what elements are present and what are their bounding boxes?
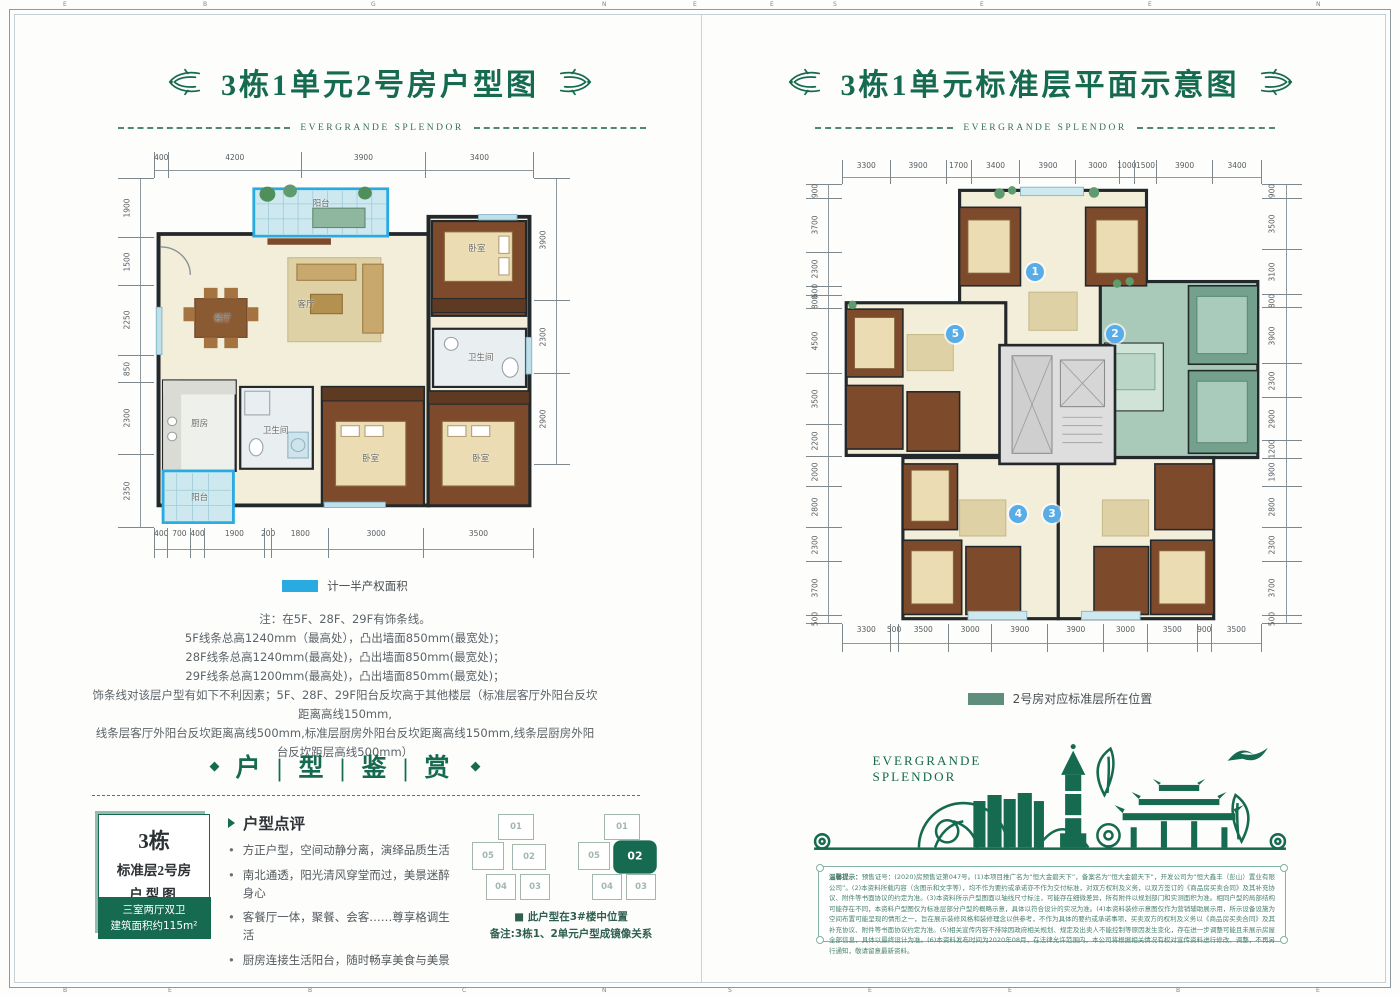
mini-unit-cell: 04 (592, 874, 622, 900)
disclaimer-text: 预售证号：(2020)房预售证第047号。(1)本项目推广名为“恒大金碧天下”，… (829, 873, 1275, 955)
dim-segment: 3700 (806, 561, 842, 615)
room-label: 餐厅 (214, 312, 231, 324)
dim-segment: 800 (1262, 294, 1302, 306)
section-title: 户 | 型 | 鉴 | 赏 (235, 748, 454, 784)
dim-value: 2200 (811, 431, 820, 450)
dim-segment: 3500 (1211, 624, 1262, 652)
dim-segment: 3900 (534, 178, 570, 300)
mini-unit-cell: 01 (498, 814, 534, 840)
dim-segment: 3000 (1075, 160, 1118, 184)
dim-segment: 3000 (1103, 624, 1146, 652)
dim-value: 400 (154, 153, 168, 162)
mini-unit-cell: 03 (626, 874, 656, 900)
edge-letter: E (168, 987, 172, 994)
legend-label: 2号房对应标准层所在位置 (1013, 690, 1153, 707)
dashed-line (474, 127, 646, 129)
skyline-brand-line1: EVERGRANDE (873, 753, 982, 768)
dim-value: 2250 (123, 311, 132, 330)
right-legend: 2号房对应标准层所在位置 (860, 690, 1260, 707)
edge-letter: C (462, 987, 466, 994)
dim-segment: 3300 (842, 624, 890, 652)
flourish-icon (165, 67, 203, 97)
edge-letter: N (602, 987, 607, 994)
review-bullet-text: 客餐厅一体，聚餐、会客……尊享格调生活 (243, 909, 456, 945)
room-label: 卫生间 (263, 424, 289, 436)
left-legend: 计一半产权面积 (120, 578, 570, 594)
dim-segment: 2300 (118, 382, 154, 454)
note-line: 28F线条总高1240mm(最高处)，凸出墙面850mm(最宽处)； (92, 648, 598, 667)
unit-number-badge: 4 (1009, 505, 1027, 523)
mini-unit-cell: 05 (472, 842, 504, 870)
dim-segment: 900 (1197, 624, 1211, 652)
legend-swatch-green (968, 693, 1004, 705)
dim-value: 2800 (811, 498, 820, 517)
mini-location-plan: 01050204030105020403 ■ 此户型在3#楼中位置 备注:3栋1… (458, 814, 684, 943)
dim-value: 1800 (291, 529, 310, 538)
dim-segment: 3900 (1156, 160, 1212, 184)
dim-value: 3000 (367, 529, 386, 538)
corner-ornament-icon (816, 936, 824, 944)
dim-value: 3000 (961, 625, 980, 634)
dim-value: 3700 (811, 216, 820, 235)
dim-segment: 900 (1262, 184, 1302, 198)
dim-segment: 3700 (1262, 561, 1302, 615)
corner-ornament-icon (1280, 864, 1288, 872)
dim-value: 2300 (123, 409, 132, 428)
edge-letter: S (728, 987, 732, 994)
section-header: ◆ 户 | 型 | 鉴 | 赏 ◆ (120, 748, 570, 784)
dim-segment: 2300 (534, 300, 570, 373)
dim-segment: 3900 (1047, 624, 1103, 652)
room-label: 阳台 (313, 197, 330, 209)
dim-value: 1700 (949, 161, 968, 170)
dim-segment: 400 (154, 528, 167, 558)
dim-value: 400 (190, 529, 204, 538)
edge-letter: B (203, 1, 207, 8)
dim-value: 850 (123, 362, 132, 376)
dim-value: 3500 (914, 625, 933, 634)
dim-value: 3700 (811, 579, 820, 598)
room-label: 厨房 (191, 417, 208, 429)
unit-number-badge: 5 (946, 325, 964, 343)
room-label: 卧室 (468, 242, 485, 254)
room-label: 卫生间 (468, 351, 494, 363)
dim-segment: 2300 (806, 252, 842, 286)
dim-segment: 3300 (842, 160, 890, 184)
dim-segment: 3500 (1147, 624, 1197, 652)
edge-letter: E (868, 987, 872, 994)
dim-value: 2300 (1268, 535, 1277, 554)
right-page-title-row: 3栋1单元标准层平面示意图 (750, 60, 1330, 104)
dim-segment: 3900 (1019, 160, 1075, 184)
room-label: 卧室 (362, 452, 379, 464)
dim-value: 1900 (1268, 463, 1277, 482)
dim-segment: 3000 (328, 528, 423, 558)
mini-unit-cell: 02 (613, 840, 657, 873)
dim-segment: 1800 (271, 528, 328, 558)
dim-value: 3400 (1227, 161, 1246, 170)
dim-value: 3400 (986, 161, 1005, 170)
dim-segment: 400 (190, 528, 203, 558)
flourish-icon (1258, 67, 1296, 97)
unit-number-badge: 3 (1043, 505, 1061, 523)
review-bullet: •客餐厅一体，聚餐、会客……尊享格调生活 (228, 909, 456, 945)
dim-value: 3900 (909, 161, 928, 170)
dim-value: 3900 (539, 230, 548, 249)
dim-segment: 2000 (806, 456, 842, 486)
dim-segment: 3900 (890, 160, 946, 184)
edge-letter: B (1176, 987, 1180, 994)
dim-value: 3300 (857, 161, 876, 170)
right-floorplan-area: 3300390017003400390030001000150039003400… (806, 160, 1302, 652)
brand-text: EVERGRANDE SPLENDOR (300, 123, 463, 133)
unit-floorplan: 阳台卧室餐厅客厅卫生间厨房卫生间卧室卧室阳台 (154, 178, 534, 528)
dim-segment: 2800 (806, 486, 842, 527)
left-page-title: 3栋1单元2号房户型图 (221, 60, 539, 104)
edge-letter: E (770, 1, 774, 8)
dim-value: 900 (1197, 625, 1211, 634)
mini-unit-cell: 05 (578, 842, 610, 870)
edge-letter: G (371, 1, 376, 8)
dim-value: 2800 (1268, 498, 1277, 517)
dim-value: 1500 (123, 252, 132, 271)
dim-value: 900 (811, 184, 820, 198)
building-number: 3栋 (99, 825, 209, 855)
page-fold-line (701, 15, 702, 982)
review-bullet: •厨房连接生活阳台，随时畅享美食与美景 (228, 952, 456, 970)
disclaimer-label: 温馨提示： (829, 873, 862, 881)
dashed-divider (92, 795, 640, 796)
dim-value: 3900 (1010, 625, 1029, 634)
floor-area: 建筑面积约115m² (100, 918, 209, 934)
dim-segment: 3500 (806, 373, 842, 424)
dim-segment: 3400 (971, 160, 1020, 184)
dim-segment: 1000 (1119, 160, 1134, 184)
review-bullet: •方正户型，空间动静分离，演绎品质生活 (228, 842, 456, 860)
dim-value: 3100 (1268, 263, 1277, 282)
dim-segment: 1900 (118, 178, 154, 237)
dim-segment: 200 (264, 528, 271, 558)
left-brand-rule: EVERGRANDE SPLENDOR (118, 123, 646, 133)
room-label: 阳台 (191, 491, 208, 503)
edge-letter: E (693, 1, 697, 8)
dim-segment: 2900 (1262, 397, 1302, 439)
dim-segment: 3100 (1262, 249, 1302, 294)
dim-segment: 3700 (806, 198, 842, 252)
dim-strip-right: 390023002900 (534, 178, 570, 465)
dim-value: 2900 (539, 409, 548, 428)
dim-segment: 3900 (991, 624, 1047, 652)
edge-letter: E (1008, 987, 1012, 994)
dim-strip-bottom: 33005003500300039003900300035009003500 (842, 624, 1262, 652)
legend-label: 计一半产权面积 (327, 578, 408, 594)
edge-letter: E (1316, 987, 1320, 994)
dim-strip-bottom: 4007004001900200180030003500 (154, 528, 534, 558)
review-bullet-text: 南北通透，阳光清风穿堂而过，美景迷醉身心 (243, 867, 456, 903)
edge-letter: B (308, 987, 312, 994)
legend-swatch-cyan (282, 580, 318, 592)
dashed-line (815, 127, 953, 129)
dim-segment: 1200 (1262, 440, 1302, 458)
dim-segment: 2800 (1262, 486, 1302, 527)
edge-letters-top: EBGNEESEEN (0, 1, 1400, 10)
dim-segment: 4500 (806, 308, 842, 373)
dim-segment: 400 (154, 152, 168, 178)
dim-segment: 2200 (806, 424, 842, 456)
arrow-right-icon (228, 818, 235, 828)
review-block: 户型点评 •方正户型，空间动静分离，演绎品质生活•南北通透，阳光清风穿堂而过，美… (228, 812, 456, 977)
review-header: 户型点评 (243, 812, 305, 834)
dim-value: 500 (1268, 612, 1277, 626)
note-line: 29F线条总高1200mm(最高处)，凸出墙面850mm(最宽处)； (92, 667, 598, 686)
mini-unit-cell: 01 (604, 814, 640, 840)
dim-value: 3000 (1116, 625, 1135, 634)
corner-ornament-icon (816, 864, 824, 872)
dim-value: 2350 (123, 481, 132, 500)
dim-value: 3500 (1268, 214, 1277, 233)
mini-building-cluster: 0105020403 (576, 814, 672, 902)
dashed-line (1137, 127, 1275, 129)
dim-value: 1900 (123, 199, 132, 218)
right-page-title: 3栋1单元标准层平面示意图 (841, 60, 1240, 104)
review-bullet: •南北通透，阳光清风穿堂而过，美景迷醉身心 (228, 867, 456, 903)
unit-info-top: 3栋 标准层2号房 户型图 (99, 815, 209, 903)
dim-segment: 3900 (1262, 307, 1302, 364)
edge-letter: N (1316, 1, 1321, 8)
left-page-title-row: 3栋1单元2号房户型图 (110, 60, 650, 104)
room-config: 三室两厅双卫 (100, 902, 209, 918)
corner-ornament-icon (1280, 936, 1288, 944)
skyline-brand-line2: SPLENDOR (873, 769, 957, 784)
edge-letter: B (63, 987, 67, 994)
dim-segment: 3400 (425, 152, 534, 178)
dim-strip-top: 400420039003400 (154, 152, 534, 178)
dim-strip-right: 9003500310080039002300290012001900280023… (1262, 184, 1302, 624)
mini-plan-note: 备注:3栋1、2单元户型成镜像关系 (458, 926, 684, 943)
skyline-graphic: EVERGRANDE SPLENDOR (806, 726, 1294, 864)
flourish-icon (785, 67, 823, 97)
bullet-dot-icon: • (228, 952, 235, 970)
dim-segment: 500 (890, 624, 898, 652)
edge-letter: E (980, 1, 984, 8)
mini-building-cluster: 0105020403 (470, 814, 566, 902)
dim-segment: 2300 (1262, 527, 1302, 561)
dim-value: 3500 (1227, 625, 1246, 634)
dim-value: 2900 (1268, 409, 1277, 428)
floorplate-drawing (842, 184, 1262, 624)
review-header-row: 户型点评 (228, 812, 456, 834)
dim-segment: 4200 (168, 152, 301, 178)
dim-value: 2300 (811, 260, 820, 279)
mini-plan-caption: ■ 此户型在3#楼中位置 (458, 909, 684, 926)
dim-value: 3500 (469, 529, 488, 538)
note-line: 饰条线对该层户型有如下不利因素；5F、28F、29F阳台反坎高于其他楼层（标准层… (92, 686, 598, 724)
dim-segment: 3500 (898, 624, 948, 652)
dim-segment: 3500 (423, 528, 534, 558)
edge-letters-bottom: BEBCNSEEBE (0, 987, 1400, 996)
dashed-line (118, 127, 290, 129)
dim-value: 4500 (811, 331, 820, 350)
mini-unit-cell: 03 (520, 874, 550, 900)
unit-spec-band: 三室两厅双卫 建筑面积约115m² (98, 897, 211, 939)
left-floorplan-area: 400420039003400 19001500225085023002350 … (118, 152, 570, 558)
diamond-icon: ◆ (209, 759, 219, 774)
dim-strip-top: 3300390017003400390030001000150039003400 (842, 160, 1262, 184)
dim-segment: 3000 (948, 624, 991, 652)
dim-value: 3000 (1088, 161, 1107, 170)
note-line: 注：在5F、28F、29F有饰条线。 (92, 610, 598, 629)
dim-segment: 3400 (1212, 160, 1262, 184)
dim-value: 2300 (1268, 371, 1277, 390)
dim-segment: 850 (118, 355, 154, 382)
dim-segment: 700 (167, 528, 190, 558)
dim-value: 1500 (1136, 161, 1155, 170)
dim-segment: 2300 (1262, 363, 1302, 397)
dim-value: 3900 (1038, 161, 1057, 170)
dim-value: 4200 (225, 153, 244, 162)
edge-letter: S (833, 1, 837, 8)
review-bullets: •方正户型，空间动静分离，演绎品质生活•南北通透，阳光清风穿堂而过，美景迷醉身心… (228, 842, 456, 970)
dim-segment: 600 (806, 286, 842, 296)
dim-value: 1900 (225, 529, 244, 538)
brand-text: EVERGRANDE SPLENDOR (963, 123, 1126, 133)
dim-segment: 800 (806, 295, 842, 307)
dim-value: 900 (1268, 184, 1277, 198)
review-bullet-text: 方正户型，空间动静分离，演绎品质生活 (243, 842, 450, 860)
dim-segment: 500 (1262, 615, 1302, 624)
dim-segment: 3900 (301, 152, 425, 178)
bullet-dot-icon: • (228, 867, 235, 903)
dim-value: 500 (811, 612, 820, 626)
dim-segment: 2350 (118, 454, 154, 528)
dim-value: 3900 (1268, 326, 1277, 345)
dim-value: 3400 (470, 153, 489, 162)
dim-value: 3900 (1066, 625, 1085, 634)
dim-value: 2300 (539, 328, 548, 347)
skyline-drawing: EVERGRANDE SPLENDOR (806, 726, 1294, 864)
dim-value: 3300 (857, 625, 876, 634)
dim-value: 3900 (354, 153, 373, 162)
dim-segment: 500 (806, 615, 842, 624)
dim-segment: 1700 (946, 160, 971, 184)
room-label: 客厅 (297, 298, 314, 310)
notes-block: 注：在5F、28F、29F有饰条线。5F线条总高1240mm（最高处），凸出墙面… (92, 610, 598, 762)
dim-value: 1200 (1268, 440, 1277, 459)
review-bullet-text: 厨房连接生活阳台，随时畅享美食与美景 (243, 952, 450, 970)
mini-unit-cell: 04 (486, 874, 516, 900)
unit-info-box: 3栋 标准层2号房 户型图 三室两厅双卫 建筑面积约115m² (98, 814, 210, 938)
dim-value: 3500 (811, 389, 820, 408)
mini-clusters: 01050204030105020403 (458, 814, 684, 902)
dim-segment: 2900 (534, 373, 570, 465)
bullet-dot-icon: • (228, 842, 235, 860)
note-line: 5F线条总高1240mm（最高处），凸出墙面850mm(最宽处)； (92, 629, 598, 648)
unit-number-badge: 2 (1106, 325, 1124, 343)
right-brand-rule: EVERGRANDE SPLENDOR (815, 123, 1275, 133)
dim-segment: 2300 (806, 527, 842, 561)
dim-segment: 1900 (1262, 458, 1302, 486)
edge-letter: E (63, 1, 67, 8)
dim-strip-left: 19001500225085023002350 (118, 178, 154, 528)
dim-value: 700 (172, 529, 186, 538)
diamond-icon: ◆ (471, 759, 481, 774)
unit-number-badge: 1 (1026, 263, 1044, 281)
flourish-icon (557, 67, 595, 97)
unit-name: 标准层2号房 (99, 859, 209, 879)
edge-letter: E (1148, 1, 1152, 8)
dim-value: 3900 (1175, 161, 1194, 170)
dim-segment: 2250 (118, 285, 154, 355)
edge-letter: N (602, 1, 607, 8)
dim-value: 3500 (1163, 625, 1182, 634)
mini-unit-cell: 02 (512, 844, 546, 870)
dim-value: 400 (154, 529, 168, 538)
room-label: 卧室 (472, 452, 489, 464)
dim-segment: 1500 (118, 237, 154, 284)
bullet-dot-icon: • (228, 909, 235, 945)
dim-value: 3700 (1268, 579, 1277, 598)
dim-segment: 1900 (204, 528, 264, 558)
dim-segment: 900 (806, 184, 842, 198)
dim-value: 2300 (811, 535, 820, 554)
disclaimer-box: 温馨提示：预售证号：(2020)房预售证第047号。(1)本项目推广名为“恒大金… (818, 866, 1286, 942)
dim-strip-left: 9003700230060080045003500220020002800230… (806, 184, 842, 624)
floorplate-plan: 15243 (842, 184, 1262, 624)
dim-segment: 3500 (1262, 198, 1302, 249)
dim-value: 2000 (811, 462, 820, 481)
dim-segment: 1500 (1134, 160, 1156, 184)
